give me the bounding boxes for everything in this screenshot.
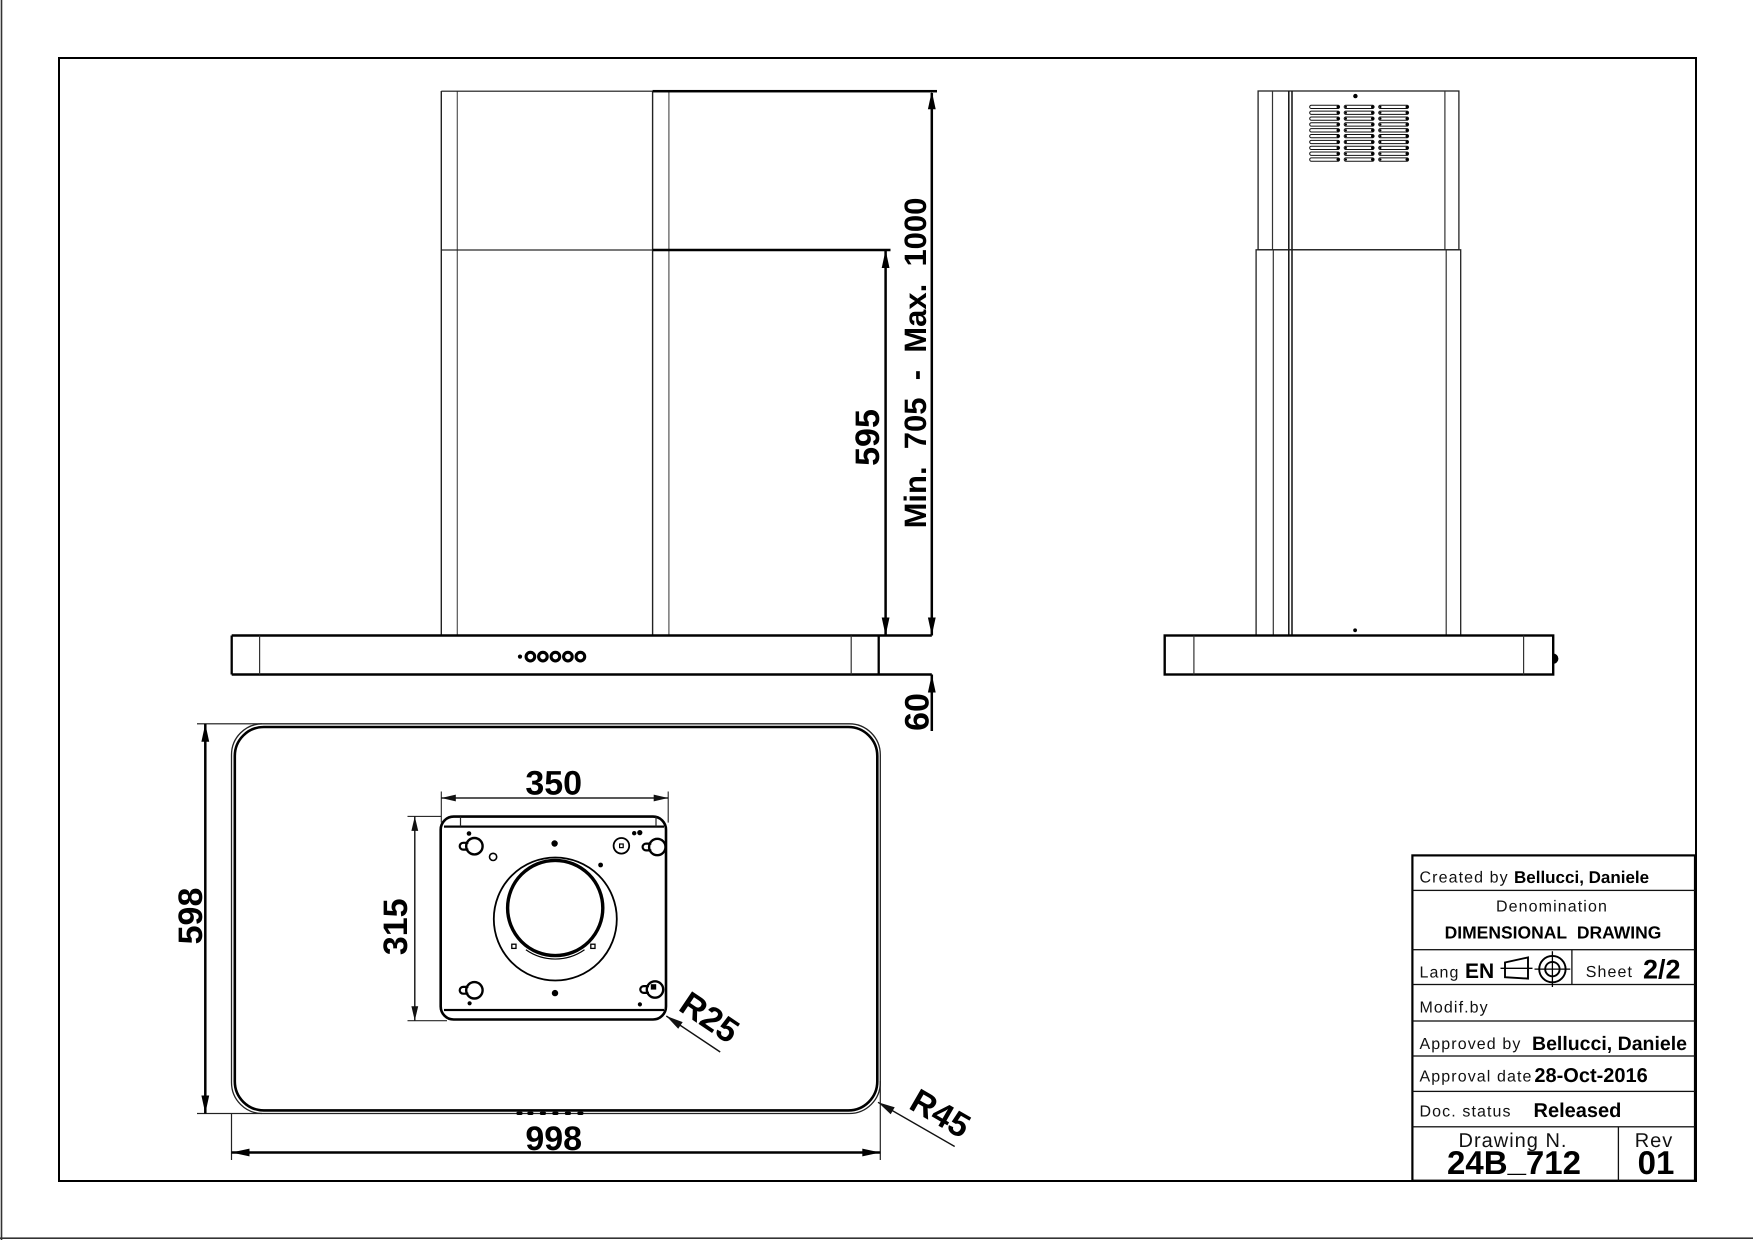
svg-text:EN: EN <box>1465 960 1494 983</box>
svg-text:595: 595 <box>849 409 887 466</box>
svg-text:315: 315 <box>377 898 415 955</box>
svg-text:Created by: Created by <box>1420 870 1509 887</box>
svg-text:Bellucci, Daniele: Bellucci, Daniele <box>1514 868 1649 887</box>
svg-text:Approval date: Approval date <box>1420 1069 1533 1086</box>
svg-text:Modif.by: Modif.by <box>1420 1000 1489 1017</box>
svg-text:28-Oct-2016: 28-Oct-2016 <box>1534 1065 1647 1087</box>
svg-text:01: 01 <box>1638 1144 1675 1181</box>
svg-text:598: 598 <box>172 888 210 945</box>
svg-text:350: 350 <box>525 765 582 803</box>
svg-text:60: 60 <box>899 693 937 731</box>
svg-text:Bellucci, Daniele: Bellucci, Daniele <box>1532 1033 1687 1055</box>
svg-text:Denomination: Denomination <box>1496 899 1608 916</box>
svg-text:Doc. status: Doc. status <box>1420 1104 1512 1121</box>
svg-text:DIMENSIONAL DRAWING: DIMENSIONAL DRAWING <box>1445 923 1662 943</box>
svg-text:Sheet: Sheet <box>1586 964 1633 981</box>
svg-text:Lang: Lang <box>1420 965 1460 982</box>
svg-text:24B_712: 24B_712 <box>1447 1141 1581 1181</box>
svg-text:Released: Released <box>1534 1100 1622 1122</box>
svg-text:2/2: 2/2 <box>1643 955 1681 985</box>
svg-text:Min. 705 - Max. 1000: Min. 705 - Max. 1000 <box>898 198 933 529</box>
svg-text:Approved by: Approved by <box>1420 1036 1522 1053</box>
svg-text:998: 998 <box>525 1120 582 1158</box>
